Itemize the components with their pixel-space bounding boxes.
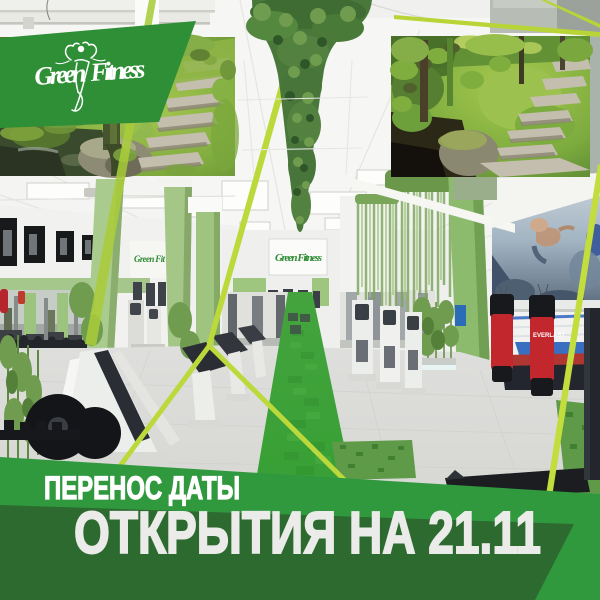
svg-text:Green: Green — [33, 58, 87, 91]
svg-text:Fitness: Fitness — [88, 54, 146, 87]
svg-text:EVERLAST: EVERLAST — [533, 333, 565, 339]
svg-text:Green Fit: Green Fit — [134, 254, 165, 264]
svg-text:ОТКРЫТИЯ НА 21.11: ОТКРЫТИЯ НА 21.11 — [74, 500, 541, 566]
svg-text:Green Fitness: Green Fitness — [275, 252, 322, 264]
